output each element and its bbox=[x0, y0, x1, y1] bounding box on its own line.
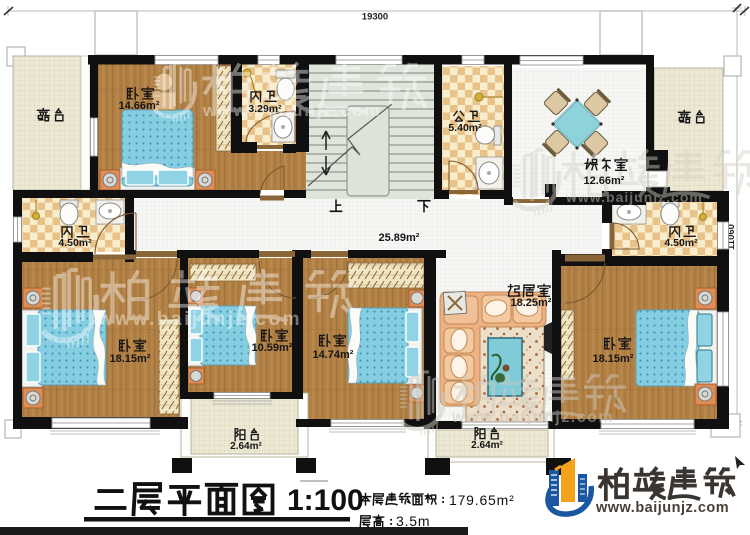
svg-text:14.74m²: 14.74m² bbox=[313, 349, 354, 361]
svg-text:3.5m: 3.5m bbox=[396, 513, 430, 529]
svg-text:www.baijunjz.com: www.baijunjz.com bbox=[97, 309, 302, 330]
svg-text:14.66m²: 14.66m² bbox=[119, 100, 160, 112]
svg-text:5.40m²: 5.40m² bbox=[448, 122, 482, 134]
svg-text:12.66m²: 12.66m² bbox=[584, 175, 625, 187]
svg-text:19300: 19300 bbox=[362, 12, 388, 23]
svg-text:4.50m²: 4.50m² bbox=[58, 237, 92, 249]
svg-text:3.29m²: 3.29m² bbox=[248, 103, 282, 115]
svg-text:10.59m²: 10.59m² bbox=[252, 342, 293, 354]
svg-text:18.15m²: 18.15m² bbox=[110, 353, 151, 365]
svg-text:18.15m²: 18.15m² bbox=[593, 353, 634, 365]
svg-text:www.baijunjz.com: www.baijunjz.com bbox=[451, 409, 614, 426]
svg-text:18.25m²: 18.25m² bbox=[511, 297, 552, 309]
svg-text:www.baijunjz.com: www.baijunjz.com bbox=[565, 189, 703, 205]
svg-text:2.64m²: 2.64m² bbox=[230, 441, 262, 452]
svg-text:www.baijunjz.com: www.baijunjz.com bbox=[595, 500, 729, 516]
svg-text:2.64m²: 2.64m² bbox=[471, 440, 503, 451]
svg-text:4.50m²: 4.50m² bbox=[664, 237, 698, 249]
svg-text:179.65m²: 179.65m² bbox=[449, 492, 515, 508]
svg-text:www.baijunjz.com: www.baijunjz.com bbox=[202, 101, 382, 120]
svg-text:1:100: 1:100 bbox=[287, 484, 364, 517]
svg-text:25.89m²: 25.89m² bbox=[379, 232, 420, 244]
